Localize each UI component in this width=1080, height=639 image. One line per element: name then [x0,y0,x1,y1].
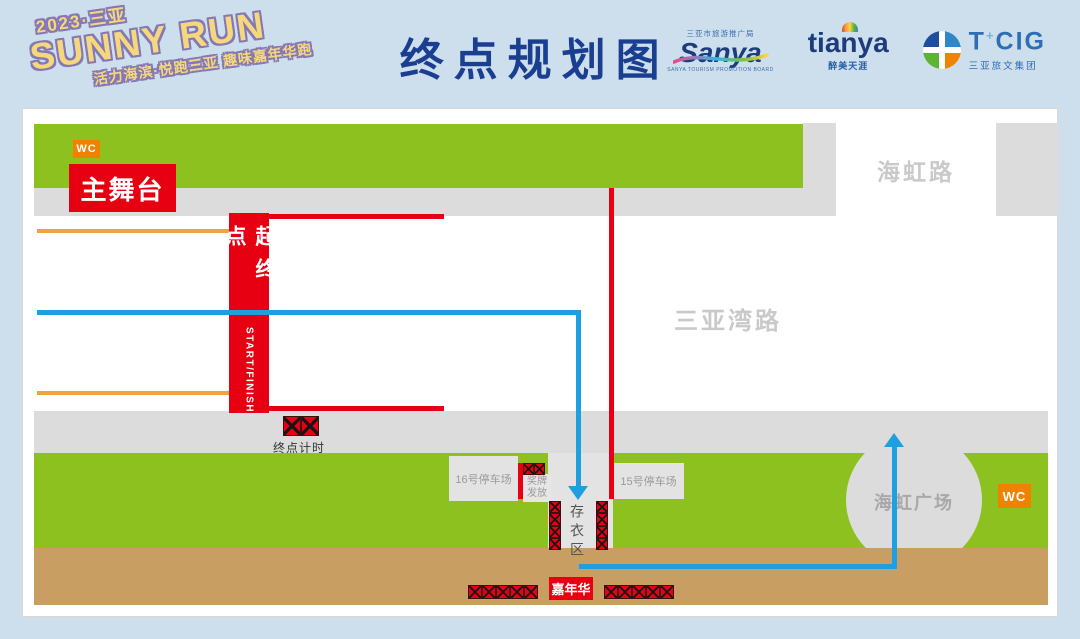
cloakroom-barrier-left [549,501,561,550]
wc-badge-plaza: WC [998,484,1031,508]
crosshatch-cell-icon [660,585,674,599]
route-blue-arrow-down-icon [568,486,588,500]
crosshatch-cell-icon [596,538,608,550]
crosshatch-cell-icon [468,585,482,599]
crosshatch-cell-icon [524,585,538,599]
route-blue-vertical [576,310,581,486]
road-block-right-of-haihong [996,123,1059,216]
start-finish-banner-en: START/FINISH [244,327,255,413]
crosshatch-cell-icon [549,501,561,513]
medal-area-marker [523,463,545,475]
course-barrier-top [269,214,444,219]
medal-distribution-label: 奖牌 发放 [523,474,551,502]
crosshatch-cell-icon [618,585,632,599]
tcig-wordmark: T+CIG [969,29,1046,54]
tianya-wordmark: tianya [808,29,889,57]
cloakroom-barrier-right [596,501,608,550]
poster: 2023·三亚 SUNNY RUN 活力海滨·悦跑三亚 趣味嘉年华跑 终点规划图… [0,0,1080,639]
crosshatch-cell-icon [283,416,301,436]
crosshatch-cell-icon [549,538,561,550]
crosshatch-cell-icon [646,585,660,599]
sanyawan-road-label: 三亚湾路 [628,301,828,336]
course-barrier-bottom [269,406,444,411]
tcig-logo: T+CIG 三亚旅文集团 [923,29,1046,71]
crosshatch-cell-icon [596,513,608,525]
haihong-plaza-label: 海虹广场 [846,489,982,515]
tianya-logo-sub-text: 醉美天涯 [828,59,868,72]
route-orange-lower [37,391,229,395]
carnival-booths-left [468,585,538,599]
haihong-road-label: 海虹路 [836,123,996,216]
tcig-logo-sub-text: 三亚旅文集团 [969,58,1038,72]
crosshatch-cell-icon [549,513,561,525]
crosshatch-cell-icon [596,501,608,513]
start-finish-banner-cn: 起终点 [219,225,279,317]
crosshatch-cell-icon [482,585,496,599]
cloakroom-label: 存衣区 [567,504,587,561]
page-title: 终点规划图 [400,24,670,88]
route-orange-upper [37,229,229,233]
route-blue-arrow-up-icon [884,433,904,447]
crosshatch-cell-icon [632,585,646,599]
event-logo: 2023·三亚 SUNNY RUN 活力海滨·悦跑三亚 趣味嘉年华跑 [24,0,314,97]
route-blue-beach-horizontal [579,564,895,569]
crosshatch-cell-icon [596,526,608,538]
crosshatch-cell-icon [496,585,510,599]
course-barrier-vertical [609,188,614,499]
crosshatch-cell-icon [534,463,545,475]
tianya-arc-icon [842,22,858,32]
crosshatch-cell-icon [301,416,319,436]
partner-logos: 三亚市旅游推广局 Sanya SANYA TOURISM PROMOTION B… [667,28,1046,73]
tianya-logo: tianya 醉美天涯 [808,29,889,72]
main-stage-label: 主舞台 [69,164,176,212]
sanya-logo: 三亚市旅游推广局 Sanya SANYA TOURISM PROMOTION B… [667,28,773,73]
finish-timing-marker [283,416,319,436]
parking-lot-16: 16号停车场 [449,456,518,501]
route-blue-plaza-vertical [892,447,897,569]
sanya-swoosh-icon [673,50,769,70]
medal-label-line2: 发放 [527,488,547,501]
crosshatch-cell-icon [549,526,561,538]
crosshatch-cell-icon [523,463,534,475]
parking-lot-15: 15号停车场 [613,463,684,499]
finish-timing-label: 终点计时 [273,439,337,456]
wc-badge-stage: WC [73,140,100,158]
finish-area-map: 海虹路 三亚湾路 海虹广场 WC 主舞台 起终点 START/FINISH 终点… [22,108,1058,617]
medal-label-line1: 奖牌 [527,476,547,489]
sanya-wordmark: Sanya [679,39,762,67]
crosshatch-cell-icon [510,585,524,599]
road-block-left-of-haihong [803,123,836,216]
tcig-globe-icon [923,31,961,69]
route-blue-horizontal [37,310,579,315]
crosshatch-cell-icon [604,585,618,599]
carnival-label: 嘉年华 [549,577,593,600]
carnival-booths-right [604,585,674,599]
